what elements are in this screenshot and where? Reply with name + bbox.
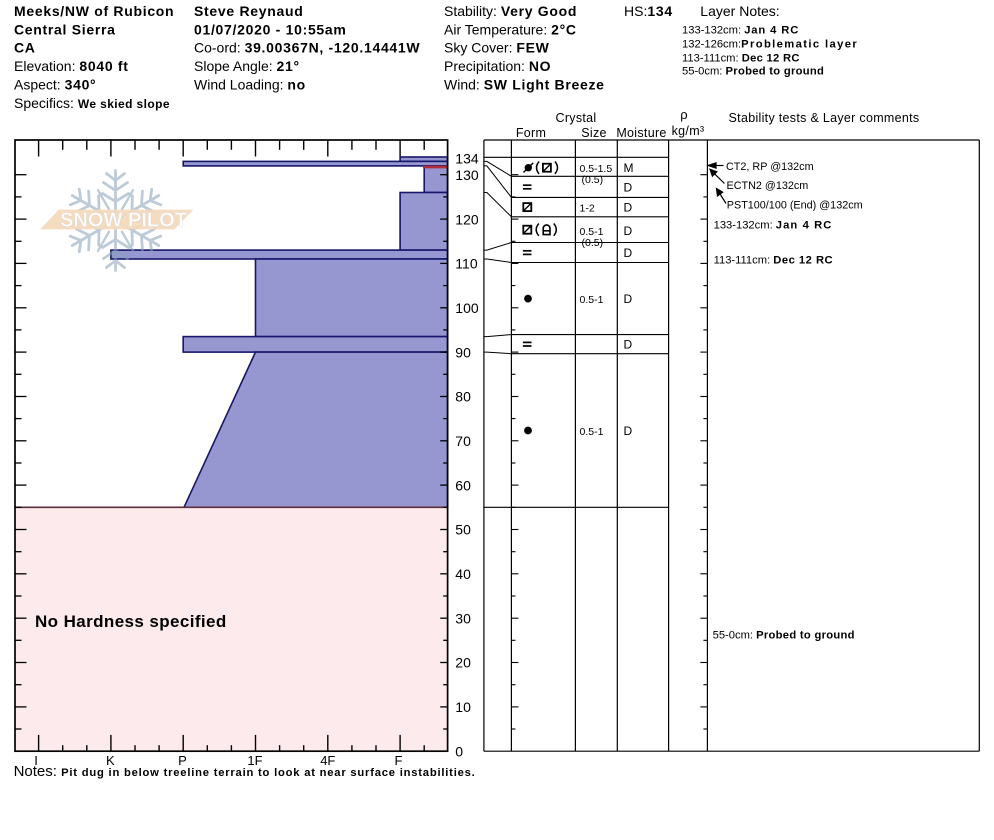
- svg-text:Form: Form: [516, 126, 546, 140]
- svg-text:Wind Loading: no: Wind Loading: no: [194, 76, 306, 92]
- svg-text:113-111cm: Dec 12 RC: 113-111cm: Dec 12 RC: [682, 53, 800, 65]
- svg-text:Notes: Pit dug in below treeli: Notes: Pit dug in below treeline terrain…: [14, 763, 476, 780]
- svg-text:D: D: [624, 180, 633, 194]
- svg-text:60: 60: [455, 477, 471, 493]
- svg-text:Sky Cover: FEW: Sky Cover: FEW: [444, 40, 550, 56]
- svg-text:50: 50: [455, 522, 471, 538]
- svg-text:1-2: 1-2: [580, 203, 595, 215]
- svg-text:Layer Notes:: Layer Notes:: [700, 3, 779, 19]
- svg-text:K: K: [106, 753, 115, 768]
- svg-text:0.5-1: 0.5-1: [580, 426, 604, 438]
- svg-text:132-126cm:Problematic layer: 132-126cm:Problematic layer: [682, 39, 858, 51]
- svg-text:Central Sierra: Central Sierra: [14, 21, 116, 37]
- svg-text:HS:134: HS:134: [624, 3, 673, 19]
- svg-text:1F: 1F: [247, 753, 262, 768]
- svg-text:120: 120: [455, 211, 479, 227]
- svg-text:ρ: ρ: [680, 107, 687, 122]
- svg-text:M: M: [624, 161, 634, 175]
- svg-text:D: D: [624, 224, 633, 238]
- svg-text:55-0cm: Probed to ground: 55-0cm: Probed to ground: [682, 66, 824, 78]
- svg-text:Wind: SW Light Breeze: Wind: SW Light Breeze: [444, 76, 605, 92]
- svg-text:F: F: [395, 753, 403, 768]
- svg-text:134: 134: [455, 151, 479, 167]
- svg-text:CT2, RP @132cm: CT2, RP @132cm: [726, 161, 814, 173]
- svg-text:10: 10: [455, 699, 471, 715]
- svg-text:Co-ord: 39.00367N, -120.14441W: Co-ord: 39.00367N, -120.14441W: [194, 40, 420, 56]
- svg-text:Moisture: Moisture: [616, 126, 666, 140]
- svg-text:01/07/2020 - 10:55am: 01/07/2020 - 10:55am: [194, 21, 347, 37]
- svg-text:P: P: [178, 753, 187, 768]
- svg-text:Meeks/NW of Rubicon: Meeks/NW of Rubicon: [14, 3, 174, 19]
- svg-text:4F: 4F: [320, 753, 335, 768]
- svg-text:70: 70: [455, 433, 471, 449]
- svg-text:113-111cm: Dec 12 RC: 113-111cm: Dec 12 RC: [714, 254, 834, 266]
- svg-text:90: 90: [455, 344, 471, 360]
- svg-text:20: 20: [455, 655, 471, 671]
- svg-text:110: 110: [455, 256, 478, 272]
- svg-text:100: 100: [455, 300, 479, 316]
- svg-text:0.5-1: 0.5-1: [580, 294, 604, 306]
- svg-text:(0.5): (0.5): [582, 174, 604, 186]
- svg-text:Elevation: 8040 ft: Elevation: 8040 ft: [14, 58, 129, 74]
- svg-text:D: D: [624, 338, 633, 352]
- svg-text:SNOW PILOT: SNOW PILOT: [60, 210, 187, 232]
- svg-text:Size: Size: [581, 126, 607, 140]
- svg-text:133-132cm: Jan 4 RC: 133-132cm: Jan 4 RC: [714, 220, 833, 232]
- svg-text:Crystal: Crystal: [556, 111, 597, 125]
- svg-text:40: 40: [455, 566, 471, 582]
- svg-text:CA: CA: [14, 40, 36, 56]
- svg-text:kg/m³: kg/m³: [672, 124, 705, 138]
- svg-text:Steve Reynaud: Steve Reynaud: [194, 3, 303, 19]
- svg-text:D: D: [624, 424, 633, 438]
- svg-text:D: D: [624, 246, 633, 260]
- svg-text:55-0cm: Probed to ground: 55-0cm: Probed to ground: [713, 630, 855, 642]
- svg-text:133-132cm: Jan 4 RC: 133-132cm: Jan 4 RC: [682, 25, 799, 37]
- svg-text:Precipitation: NO: Precipitation: NO: [444, 58, 551, 74]
- svg-text:Slope Angle: 21°: Slope Angle: 21°: [194, 58, 300, 74]
- svg-text:80: 80: [455, 389, 471, 405]
- svg-text:Specifics: We skied slope: Specifics: We skied slope: [14, 95, 170, 111]
- svg-text:(0.5): (0.5): [582, 237, 604, 249]
- svg-text:Stability tests & Layer commen: Stability tests & Layer comments: [729, 111, 920, 125]
- svg-text:130: 130: [455, 167, 479, 183]
- svg-text:Stability: Very Good: Stability: Very Good: [444, 3, 577, 19]
- svg-text:ECTN2 @132cm: ECTN2 @132cm: [727, 180, 809, 192]
- svg-text:0: 0: [455, 743, 463, 759]
- svg-text:No Hardness specified: No Hardness specified: [35, 612, 227, 631]
- svg-text:Air Temperature: 2°C: Air Temperature: 2°C: [444, 21, 577, 37]
- svg-text:D: D: [624, 201, 633, 215]
- svg-text:PST100/100 (End) @132cm: PST100/100 (End) @132cm: [727, 199, 863, 211]
- svg-text:Aspect: 340°: Aspect: 340°: [14, 76, 96, 92]
- svg-text:D: D: [624, 292, 633, 306]
- svg-text:30: 30: [455, 610, 471, 626]
